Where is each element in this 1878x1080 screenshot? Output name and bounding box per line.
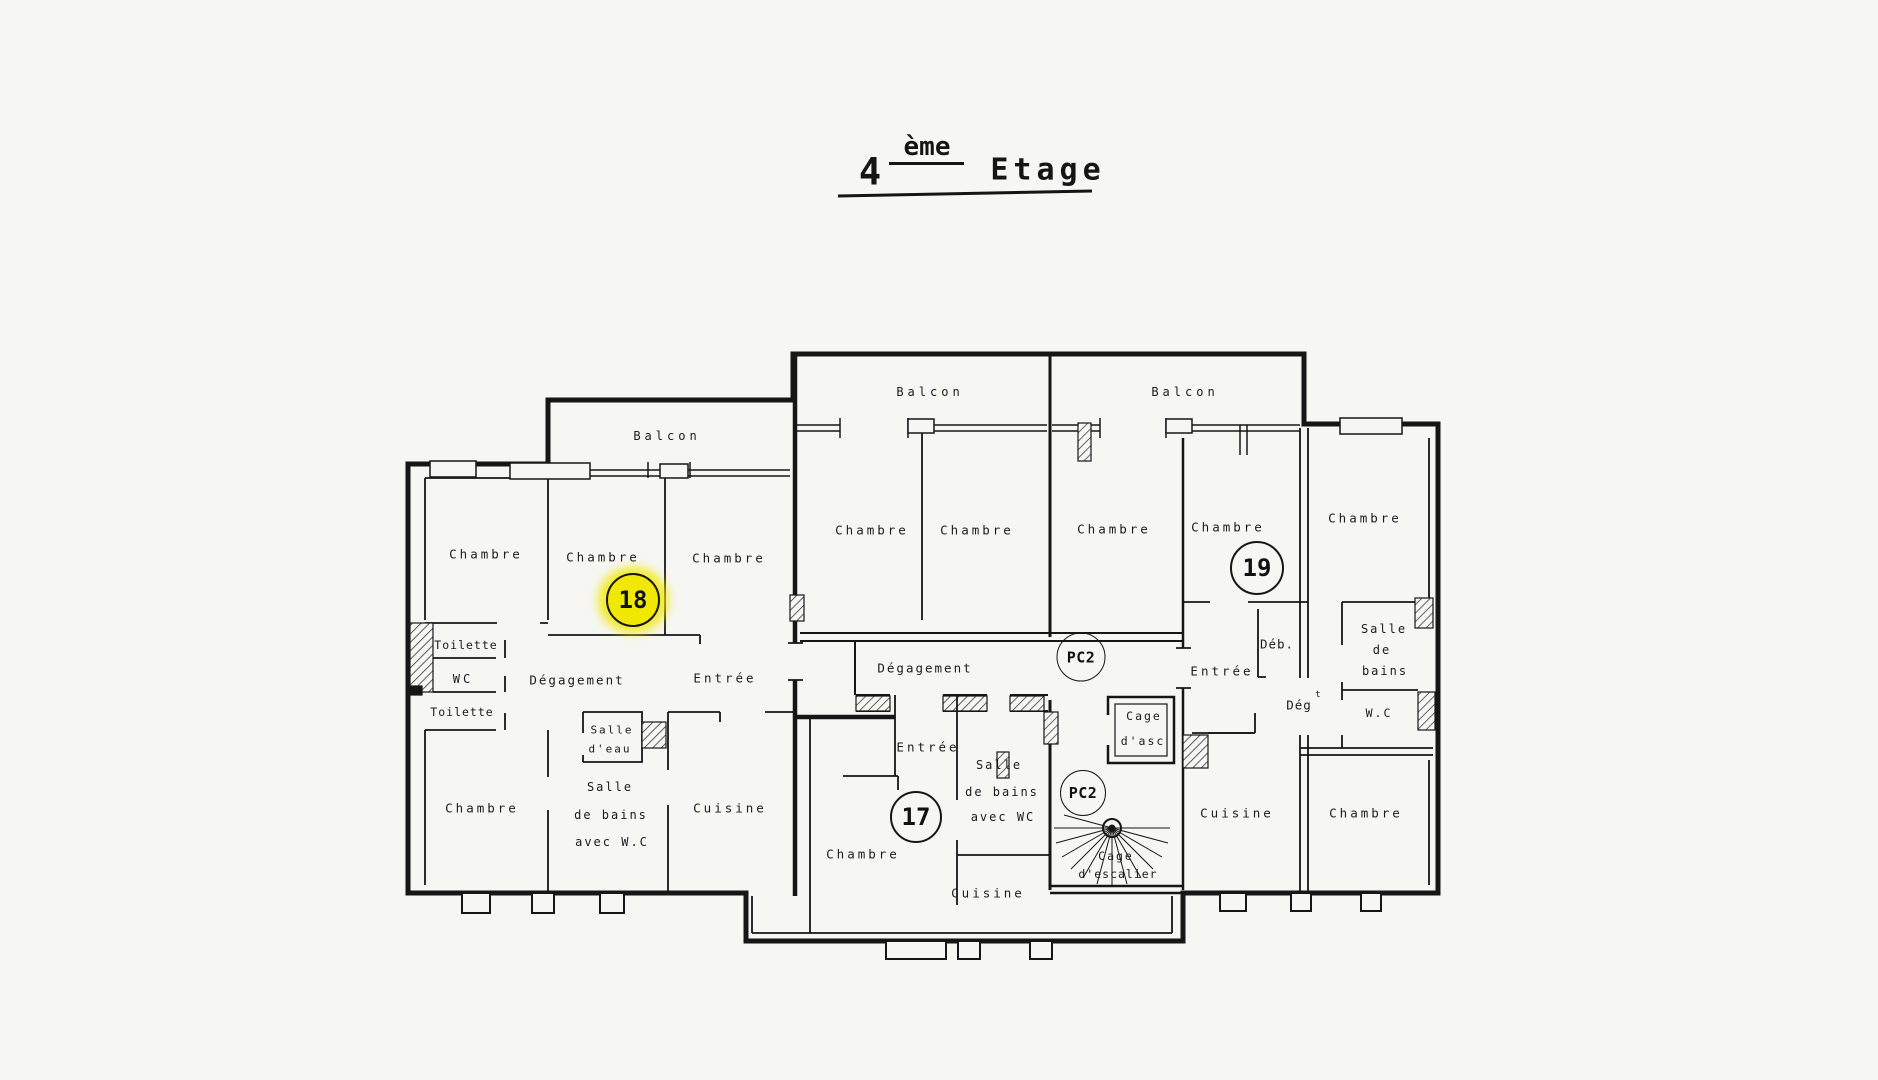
- chambre-17: Chambre: [826, 847, 900, 862]
- entree-18: Entrée: [693, 671, 756, 686]
- cuisine-17: Cuisine: [951, 886, 1025, 901]
- entree-17: Entrée: [896, 740, 959, 755]
- sdb-19-line1: Salle: [1361, 622, 1407, 636]
- cage-asc-line2: d'asc: [1121, 734, 1166, 748]
- floor-plan-page: 4 ème Etage BalconBalconBalconChambreCha…: [0, 0, 1878, 1080]
- cage-escalier-line1: Cage: [1098, 849, 1134, 863]
- sdb-18-line1: Salle: [587, 780, 633, 794]
- degt-19: Dég: [1286, 698, 1312, 713]
- wc-19: W.C: [1366, 706, 1393, 720]
- apartment-19-badge: 19: [1230, 541, 1284, 595]
- balcon-label-19: Balcon: [1151, 385, 1218, 399]
- pc2-upper-badge: PC2: [1057, 633, 1106, 682]
- chambre-19-d: Chambre: [1329, 806, 1403, 821]
- chambre-19-b: Chambre: [1191, 520, 1265, 535]
- sdb-19-line3: bains: [1362, 664, 1408, 678]
- pc2-lower-badge: PC2: [1060, 770, 1106, 816]
- chambre-18-c: Chambre: [692, 551, 766, 566]
- floor-title-superscript: ème: [904, 132, 951, 162]
- degt-19-sup: t: [1315, 690, 1320, 700]
- salle-eau-line2: d'eau: [588, 743, 631, 756]
- balcon-label-mid: Balcon: [896, 385, 963, 399]
- sdb-17-line3: avec WC: [971, 810, 1036, 824]
- salle-eau-line1: Salle: [590, 724, 633, 737]
- balcon-label-18: Balcon: [633, 429, 700, 443]
- entree-19: Entrée: [1190, 664, 1253, 679]
- apartment-18-badge: 18: [606, 573, 660, 627]
- deb-19: Déb.: [1260, 637, 1294, 652]
- title-superscript-underline: [889, 162, 964, 165]
- chambre-19-a: Chambre: [1077, 522, 1151, 537]
- wc-18: WC: [453, 672, 473, 686]
- cage-asc-line1: Cage: [1126, 709, 1162, 723]
- floor-title-number: 4: [859, 151, 881, 194]
- toilette-lower: Toilette: [430, 705, 493, 719]
- cuisine-18: Cuisine: [693, 801, 767, 816]
- degagement-18: Dégagement: [529, 673, 624, 688]
- chambre-18-a: Chambre: [449, 547, 523, 562]
- toilette-upper: Toilette: [434, 638, 497, 652]
- chambre-18-d: Chambre: [445, 801, 519, 816]
- chambre-18-b: Chambre: [566, 550, 640, 565]
- chambre-mid-b: Chambre: [940, 523, 1014, 538]
- cage-escalier-line2: d'escalier: [1078, 867, 1157, 881]
- chambre-mid-a: Chambre: [835, 523, 909, 538]
- sdb-17-line2: de bains: [965, 785, 1039, 799]
- floor-title-word: Etage: [990, 153, 1105, 188]
- sdb-17-line1: Salle: [976, 758, 1022, 772]
- sdb-18-line3: avec W.C: [575, 835, 649, 849]
- sdb-19-line2: de: [1373, 643, 1391, 657]
- degagement-commun: Dégagement: [877, 661, 972, 676]
- cuisine-19: Cuisine: [1200, 806, 1274, 821]
- apartment-17-badge: 17: [890, 791, 942, 843]
- sdb-18-line2: de bains: [574, 808, 648, 822]
- chambre-19-c: Chambre: [1328, 511, 1402, 526]
